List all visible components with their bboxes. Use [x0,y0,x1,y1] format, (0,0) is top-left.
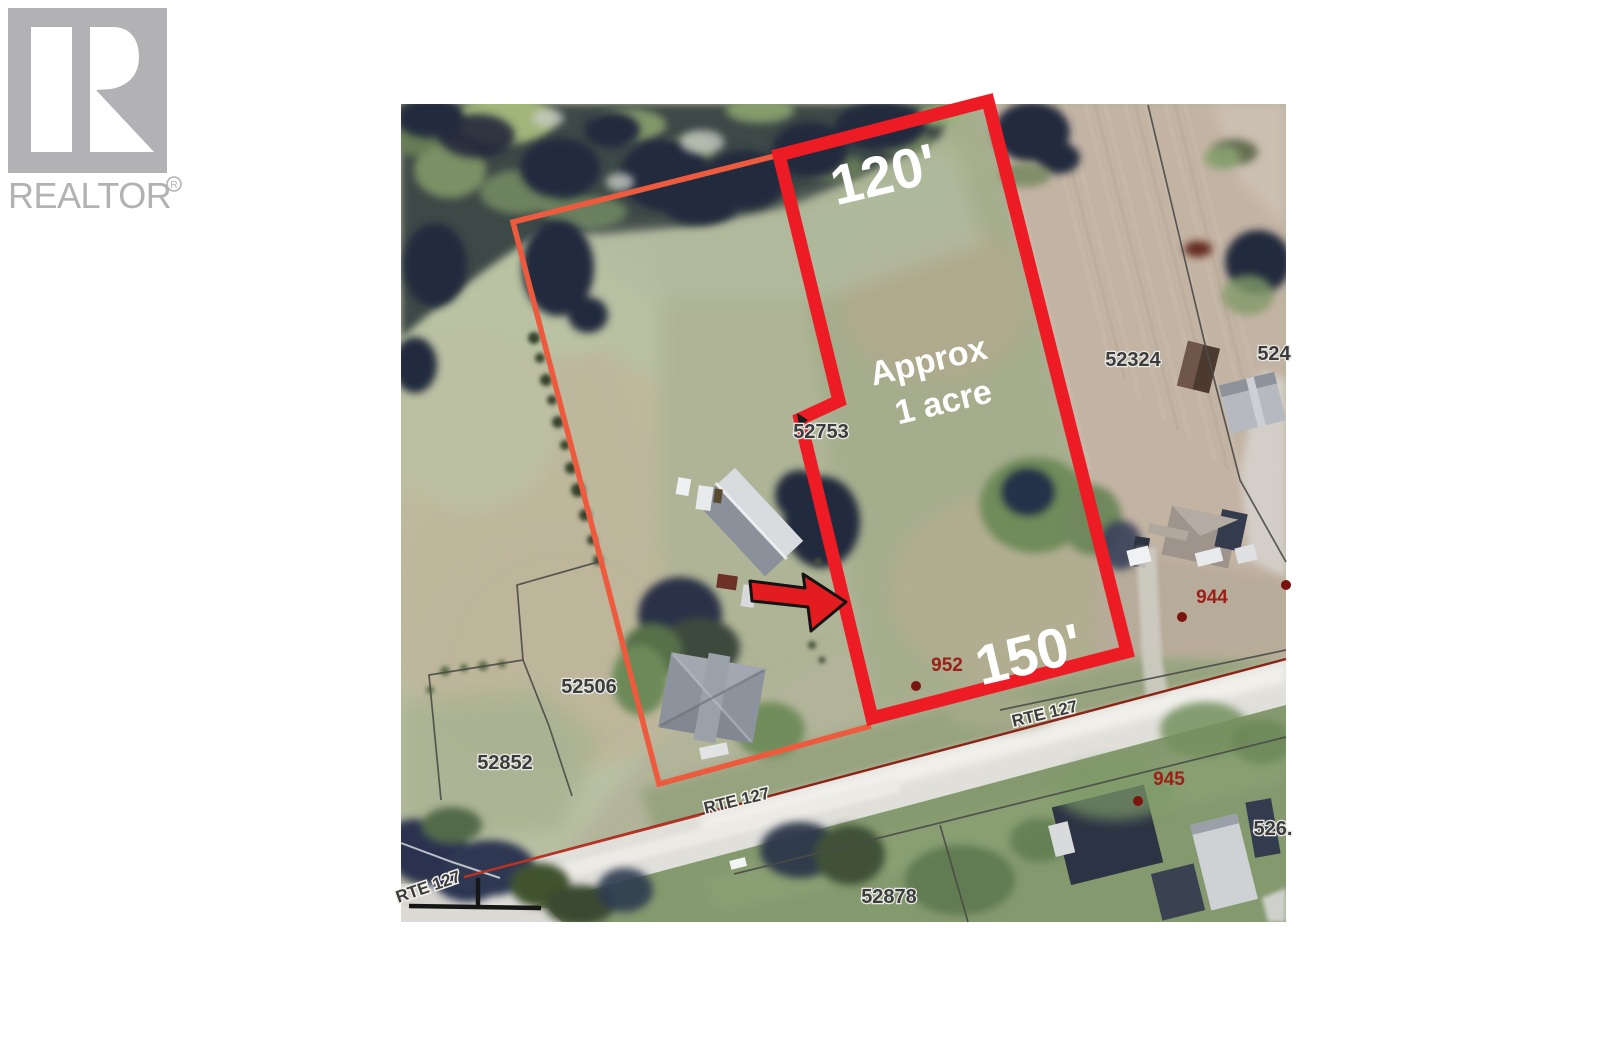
svg-text:52852: 52852 [477,752,533,774]
svg-text:R: R [170,180,177,191]
svg-text:REALTOR: REALTOR [8,175,171,216]
svg-text:52878: 52878 [861,886,917,908]
svg-text:52753: 52753 [793,421,849,443]
svg-text:52506: 52506 [561,676,617,698]
svg-text:524: 524 [1257,343,1291,365]
svg-text:944: 944 [1196,587,1228,608]
svg-text:952: 952 [931,655,963,676]
svg-text:945: 945 [1153,769,1185,790]
svg-text:526.: 526. [1254,818,1293,840]
svg-text:52324: 52324 [1105,349,1161,371]
